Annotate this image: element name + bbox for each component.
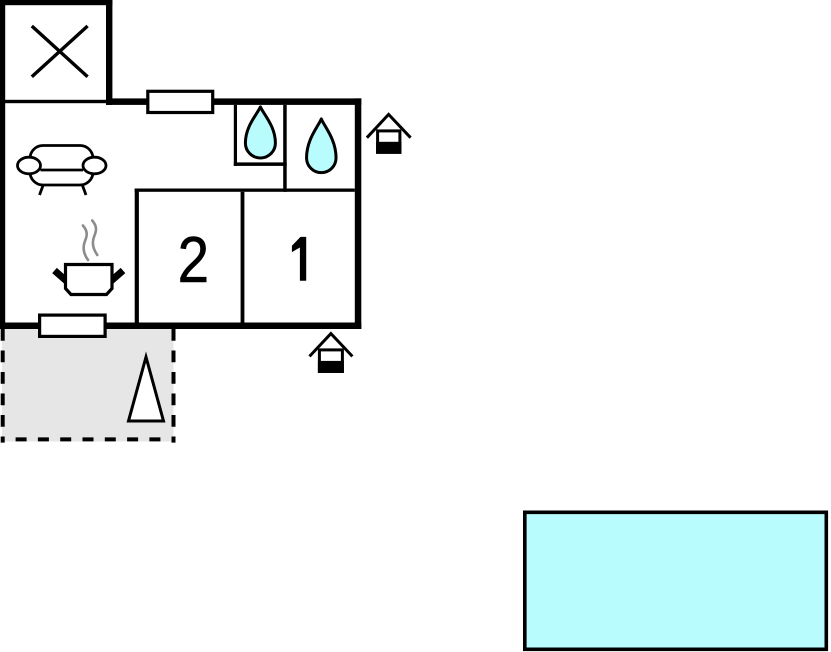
- svg-text:2: 2: [178, 223, 209, 296]
